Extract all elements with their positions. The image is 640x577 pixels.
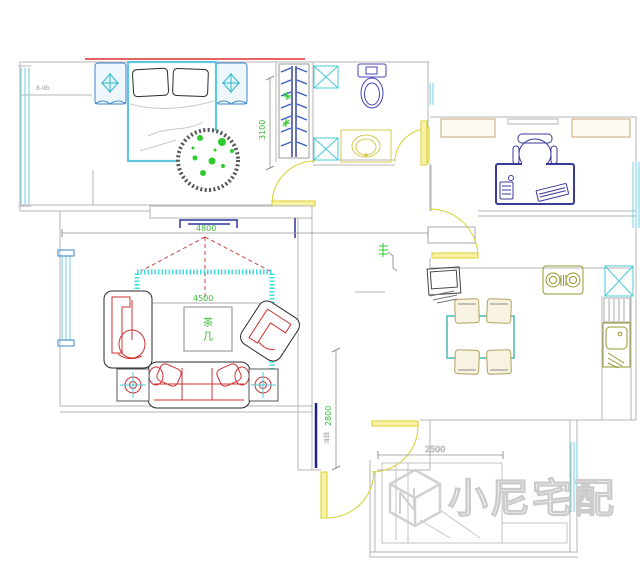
shaft-x-top <box>314 66 338 88</box>
coffee-table: 茶 几 <box>184 307 232 351</box>
kitchen-dining <box>379 243 633 374</box>
side-table-right <box>249 369 278 401</box>
toilet-icon <box>358 64 386 108</box>
counter-hatch <box>604 298 630 322</box>
study-shelf <box>508 119 558 124</box>
l-sofa <box>104 291 152 368</box>
hallway: 鞋柜 2800 <box>316 348 340 470</box>
floor-plan-drawing: 8-9b <box>0 0 640 577</box>
dim-2800-group: 2800 <box>324 348 340 470</box>
tv-cabinet <box>150 206 312 218</box>
study-cabinet-right <box>572 119 630 137</box>
vanity-sink <box>341 130 391 162</box>
master-bedroom-door <box>272 161 315 206</box>
windows <box>18 66 639 512</box>
hangers <box>281 68 307 146</box>
round-rug <box>178 130 238 190</box>
dim-4800-group: 4800 <box>62 224 428 237</box>
dim-4500-group: 4500 <box>137 294 272 303</box>
armchair <box>237 298 303 365</box>
dim-2500-group: 2500 <box>378 445 503 459</box>
tv-viewing-guides <box>141 237 270 300</box>
study-cabinet-left <box>441 119 495 137</box>
bedroom2-door <box>372 421 418 472</box>
balcony-note: 8-9b <box>36 85 50 92</box>
bathroom-window <box>430 83 433 105</box>
study-window <box>633 162 639 228</box>
master-bedroom: 8-9b <box>36 62 309 190</box>
dim-hallway-depth: 2800 <box>324 406 333 426</box>
shoe-cabinet-label: 鞋柜 <box>322 432 330 444</box>
bathroom <box>314 64 391 162</box>
dim-living-rug-width: 4500 <box>193 294 213 303</box>
side-table-left <box>117 369 149 401</box>
coffee-table-label: 茶 <box>203 316 213 329</box>
kitchen-door <box>430 209 478 258</box>
floor-drain-icon <box>379 243 397 271</box>
stove-icon <box>543 266 583 294</box>
watermark: 小尼宅配 <box>390 470 616 526</box>
dim-master-bedroom-depth: 3100 <box>258 120 267 140</box>
coffee-table-label2: 几 <box>203 331 213 343</box>
wardrobe <box>279 64 309 158</box>
floor-plan-canvas: 8-9b <box>0 0 640 577</box>
three-seat-sofa <box>148 362 250 408</box>
dresser-2 <box>502 523 567 543</box>
kitchen-sink-icon <box>603 323 630 368</box>
kitchen-shaft-x <box>605 266 633 296</box>
living-room: 4800 4500 茶 几 <box>62 206 428 408</box>
corner-tv-icon <box>427 267 461 303</box>
study-door <box>421 121 427 165</box>
entry-door <box>321 471 374 518</box>
dim-second-bedroom-width: 2500 <box>425 445 445 454</box>
cube-n-logo-icon <box>390 470 440 526</box>
wardrobe-green-marks <box>283 92 291 127</box>
shaft-x-bottom <box>314 138 338 160</box>
dim-3100-group: 3100 <box>258 76 274 170</box>
dining-chairs <box>455 299 512 375</box>
study <box>441 119 630 204</box>
dim-living-room-width: 4800 <box>196 224 216 233</box>
desk <box>496 164 574 204</box>
watermark-text: 小尼宅配 <box>448 476 616 522</box>
